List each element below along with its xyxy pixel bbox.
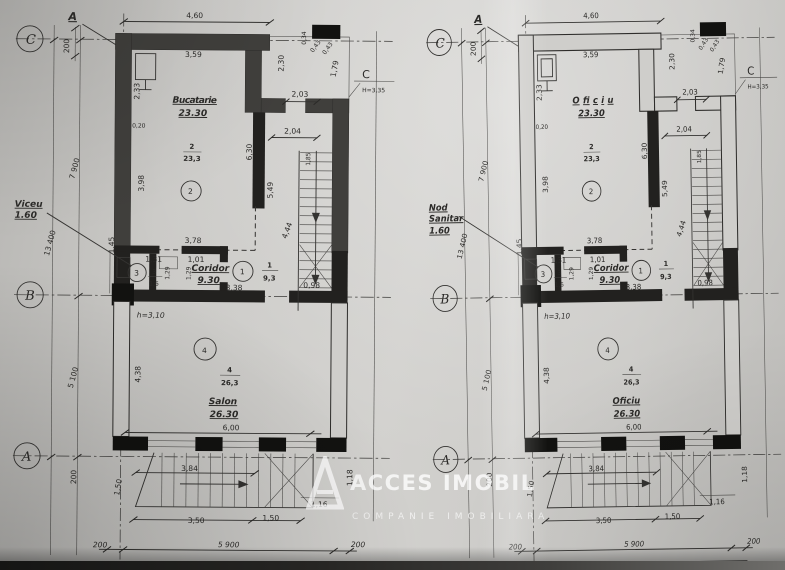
dim-2-33: 2,33 xyxy=(535,84,544,101)
room2-frac-bot: 23,3 xyxy=(584,155,600,164)
dim-200-axis-a: 200 xyxy=(485,472,494,487)
dim-3-84: 3,84 xyxy=(181,464,198,473)
dim-1-01: 1,01 xyxy=(188,255,205,264)
axis-a-label: A xyxy=(21,450,32,465)
dim-200-bottom-left: 200 xyxy=(93,540,108,549)
dim-1-50-h: 1,50 xyxy=(262,513,279,522)
corridor-name: Coridor xyxy=(192,264,230,274)
room4-name: Oficiu xyxy=(613,396,641,407)
dim-3-98: 3,98 xyxy=(541,176,550,193)
room3-number: 3 xyxy=(541,270,546,279)
floorplan-left: C B A A 200 4,60 3,59 xyxy=(0,0,400,570)
dim-6-30: 6,30 xyxy=(640,142,649,159)
axis-c-right-height: H=3,35 xyxy=(362,87,385,94)
dim-3-98: 3,98 xyxy=(137,175,146,192)
room4-frac-top: 4 xyxy=(629,365,634,373)
axis-top-label: A xyxy=(473,12,482,26)
room4-number: 4 xyxy=(202,346,207,355)
room2-frac-top: 2 xyxy=(589,143,594,151)
room1-frac-top: 1 xyxy=(267,261,272,270)
axis-a-label: A xyxy=(440,452,450,468)
room2-number: 2 xyxy=(589,187,594,196)
dim-4-38: 4,38 xyxy=(133,366,142,383)
dim-6-00: 6,00 xyxy=(223,423,240,432)
dim-1-16: 1,16 xyxy=(311,500,328,509)
dim-0-43-b: 0,43 xyxy=(321,41,335,56)
floorplan-right: C B A A 200 4,60 3,59 xyxy=(413,0,785,570)
dim-3-50: 3,50 xyxy=(596,516,612,526)
dim-2-30: 2,30 xyxy=(277,55,286,72)
salon-zone: h=3,10 4 4 26,3 Oficiu 26.30 4,38 6,00 xyxy=(541,310,642,433)
side-room-line1: Nod xyxy=(429,203,449,214)
dim-3-78: 3,78 xyxy=(185,236,202,245)
axis-b-label: B xyxy=(439,291,449,307)
room1-number: 1 xyxy=(240,267,245,276)
dim-1-16: 1,16 xyxy=(709,497,725,507)
axis-top-label: A xyxy=(67,10,77,23)
room4-name: Salon xyxy=(209,397,237,407)
corridor-area: 9.30 xyxy=(599,275,620,286)
room4-frac-bot: 26,3 xyxy=(623,378,639,387)
dim-5900: 5 900 xyxy=(624,539,644,549)
dim-0-43-b: 0,43 xyxy=(709,39,721,54)
side-room-line2: 1.60 xyxy=(15,211,37,221)
dim-4-38: 4,38 xyxy=(542,367,551,384)
dim-2-03: 2,03 xyxy=(291,90,308,99)
dim-1-50-v: 1,50 xyxy=(112,478,124,496)
dim-4-44: 4,44 xyxy=(675,219,688,238)
room3-frac-top: 3 xyxy=(152,269,156,276)
dim-1-45: 1,45 xyxy=(107,236,116,253)
dim-3-59: 3,59 xyxy=(185,50,202,59)
dim-0-98: 0,98 xyxy=(303,281,320,290)
bottom-zone: 3,84 1,50 3,50 1,50 1,16 1,18 200 5 900 … xyxy=(507,461,761,570)
dim-2-03: 2,03 xyxy=(682,87,698,97)
dim-1-29-a: 1,29 xyxy=(164,266,171,280)
dim-5-49: 5,49 xyxy=(266,182,275,199)
dim-1-29-a: 1,29 xyxy=(569,267,575,281)
room4-area: 26.30 xyxy=(210,410,239,420)
dim-0-20: 0,20 xyxy=(132,123,146,130)
room2-name: Oficiu xyxy=(572,96,613,107)
stairs-exterior xyxy=(135,453,313,508)
dim-0-43-a: 0,43 xyxy=(698,37,710,52)
dim-0-34: 0,34 xyxy=(690,29,696,43)
axis-b-label: B xyxy=(24,289,35,304)
dim-1-45: 1,45 xyxy=(515,239,524,256)
room4-frac-top: 4 xyxy=(227,365,232,374)
dim-2-33: 2,33 xyxy=(132,83,141,100)
dim-1-50-v: 1,50 xyxy=(525,480,536,498)
room1-frac-bot: 9,3 xyxy=(660,273,672,281)
corridor-area: 9.30 xyxy=(197,276,219,286)
bottom-zone: 3,84 1,50 3,50 1,50 1,16 1,18 200 5 900 … xyxy=(93,463,366,570)
room3-frac-top: 3 xyxy=(557,270,561,276)
dim-1-79: 1,79 xyxy=(329,59,341,77)
dim-1-31: 1,31 xyxy=(551,255,567,265)
room2-area: 23.30 xyxy=(178,109,207,119)
dim-1-18: 1,18 xyxy=(740,466,749,483)
height-note: h=3,10 xyxy=(137,311,165,320)
room2-name: Bucatarie xyxy=(173,96,217,106)
dim-3-84: 3,84 xyxy=(588,464,604,474)
dim-0-98: 0,98 xyxy=(697,278,713,288)
dim-1-79: 1,79 xyxy=(716,56,727,74)
dim-2-04: 2,04 xyxy=(284,127,301,136)
floorplan-drawing: C B A A 200 4,60 3,59 xyxy=(0,0,400,570)
dim-200-bottom-left: 200 xyxy=(509,542,523,552)
floorplan-drawing: C B A A 200 4,60 3,59 xyxy=(413,0,785,570)
dim-3-38: 3,38 xyxy=(226,283,243,292)
dim-3-59: 3,59 xyxy=(583,50,599,60)
room3-frac-bot: 1,6 xyxy=(555,282,564,288)
stairs-exterior xyxy=(546,451,711,508)
dim-3-38: 3,38 xyxy=(626,282,642,292)
dim-5900: 5 900 xyxy=(218,540,240,549)
scan-edge-band xyxy=(0,561,785,570)
dim-200-bottom-right: 200 xyxy=(747,536,761,546)
dim-200-top: 200 xyxy=(62,39,71,54)
dim-4-60: 4,60 xyxy=(583,11,599,21)
dim-13400: 13 400 xyxy=(42,229,58,257)
dim-4-60: 4,60 xyxy=(186,11,203,20)
dim-200-bottom-right: 200 xyxy=(351,540,366,549)
dim-1-50-h: 1,50 xyxy=(665,512,681,522)
dim-1-85: 1,85 xyxy=(305,152,312,166)
dim-6-30: 6,30 xyxy=(245,143,254,160)
room4-number: 4 xyxy=(605,346,610,355)
side-room-line3: 1.60 xyxy=(429,226,450,237)
axis-c-right-label: C xyxy=(362,68,370,81)
side-room-line1: Viceu xyxy=(15,200,44,210)
corridor-zone: Nod Sanitar 1.60 1,31 1,01 3 3 1,6 1,29 … xyxy=(429,199,714,295)
dim-1-18: 1,18 xyxy=(345,469,354,486)
corridor-name: Coridor xyxy=(594,263,630,274)
room2-area: 23.30 xyxy=(578,109,605,120)
dim-2-04: 2,04 xyxy=(676,124,692,134)
salon-zone: h=3,10 4 4 26,3 Salon 26.30 4,38 6,00 xyxy=(133,311,241,433)
dim-0-34: 0,34 xyxy=(301,31,308,45)
dim-5-49: 5,49 xyxy=(660,180,669,197)
room1-frac-bot: 9,3 xyxy=(263,273,276,282)
axis-c-label: C xyxy=(26,33,36,48)
corridor-zone: Viceu 1.60 1,31 1,01 3 3 1,6 1,29 1,29 C… xyxy=(14,200,321,293)
dim-2-30: 2,30 xyxy=(667,53,676,70)
height-note: h=3,10 xyxy=(544,311,570,321)
axis-c-right-height: H=3,35 xyxy=(747,84,769,91)
room3-frac-bot: 1,6 xyxy=(149,281,159,288)
room4-area: 26.30 xyxy=(614,409,641,420)
axis-c-label: C xyxy=(435,35,445,51)
room1-number: 1 xyxy=(638,266,643,275)
dim-4-44: 4,44 xyxy=(280,221,294,240)
room3-number: 3 xyxy=(134,269,139,278)
side-room-line2: Sanitar xyxy=(429,214,464,225)
room2-number: 2 xyxy=(188,187,193,196)
dim-3-78: 3,78 xyxy=(587,236,603,246)
dim-1-31: 1,31 xyxy=(145,255,162,264)
axis-c-right-label: C xyxy=(747,64,754,78)
dim-0-20: 0,20 xyxy=(536,125,549,131)
room1-frac-top: 1 xyxy=(663,260,668,268)
room4-frac-bot: 26,3 xyxy=(221,378,239,387)
room2-frac-bot: 23,3 xyxy=(183,154,201,163)
dim-200-top: 200 xyxy=(469,41,478,56)
dim-3-50: 3,50 xyxy=(188,516,205,525)
dim-1-85: 1,85 xyxy=(697,150,703,164)
dim-13400: 13 400 xyxy=(455,232,469,260)
room2-frac-top: 2 xyxy=(189,142,194,151)
dim-200-axis-a: 200 xyxy=(69,470,78,485)
dim-6-00: 6,00 xyxy=(626,422,642,432)
scanned-floorplan-sheet: C B A A 200 4,60 3,59 xyxy=(0,0,785,570)
